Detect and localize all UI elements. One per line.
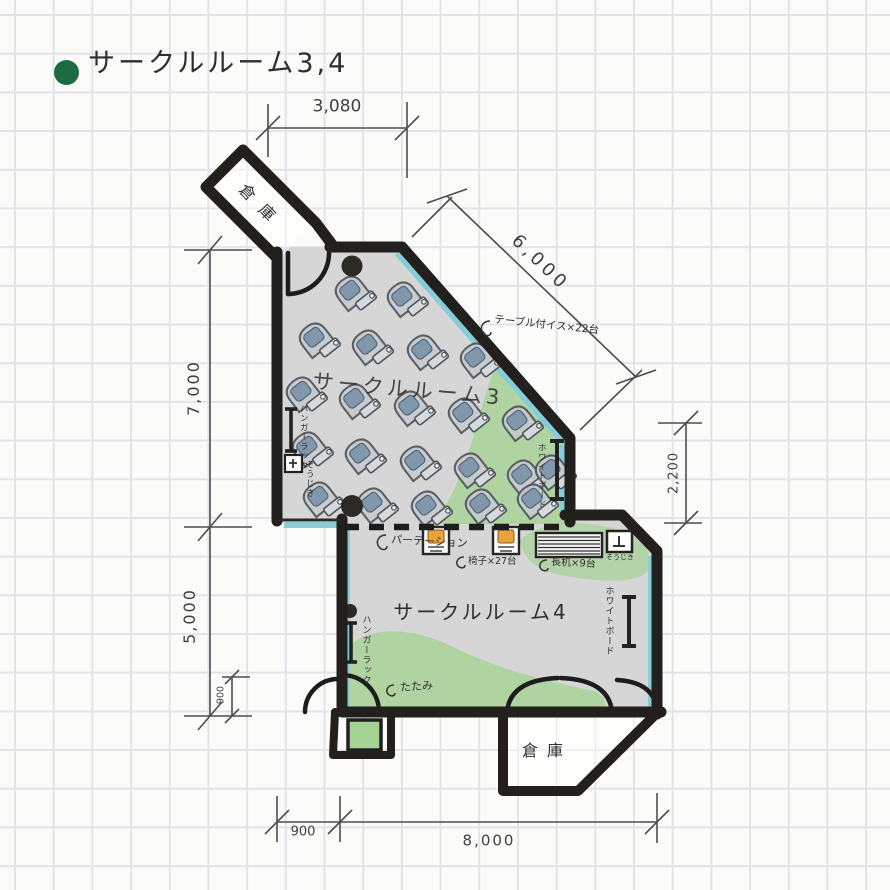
floor-plan-svg bbox=[0, 0, 890, 890]
dim-left-small: 900 bbox=[216, 686, 226, 704]
door-arc bbox=[305, 679, 338, 712]
whiteboard-room4-note: ホワイトボード bbox=[604, 586, 613, 656]
stacked-chairs-note: 椅子×27台 bbox=[468, 557, 517, 567]
floor-plan-page: サークルルーム3,4 bbox=[0, 0, 890, 890]
long-desk-stack bbox=[536, 533, 602, 557]
dim-bottom-width: 8,000 bbox=[463, 834, 516, 849]
tatami-note: たたみ bbox=[400, 680, 434, 693]
hanger-rack-room4-note: ハンガーラック bbox=[361, 615, 370, 685]
dim-top-width: 3,080 bbox=[313, 99, 362, 116]
dim-left-upper: 7,000 bbox=[186, 360, 202, 416]
column-dot bbox=[341, 495, 363, 517]
storage-lower-label: 倉庫 bbox=[522, 743, 572, 759]
alcove-green-fixture bbox=[348, 720, 381, 750]
whiteboard-room3-note: ホワイトボード bbox=[537, 443, 546, 510]
dim-right-height: 2,200 bbox=[668, 452, 681, 494]
column-dot bbox=[342, 256, 363, 277]
stacked-chair-icon bbox=[493, 527, 519, 554]
dim-bottom-left: 900 bbox=[291, 826, 316, 839]
vacuum-room4-icon bbox=[607, 531, 632, 552]
vacuum-lower-note: そうじき bbox=[606, 555, 634, 562]
vacuum-upper-note: そうじき bbox=[305, 460, 314, 498]
room4-name-label: サークルルーム4 bbox=[393, 602, 569, 622]
dim-left-lower: 5,000 bbox=[182, 588, 198, 644]
